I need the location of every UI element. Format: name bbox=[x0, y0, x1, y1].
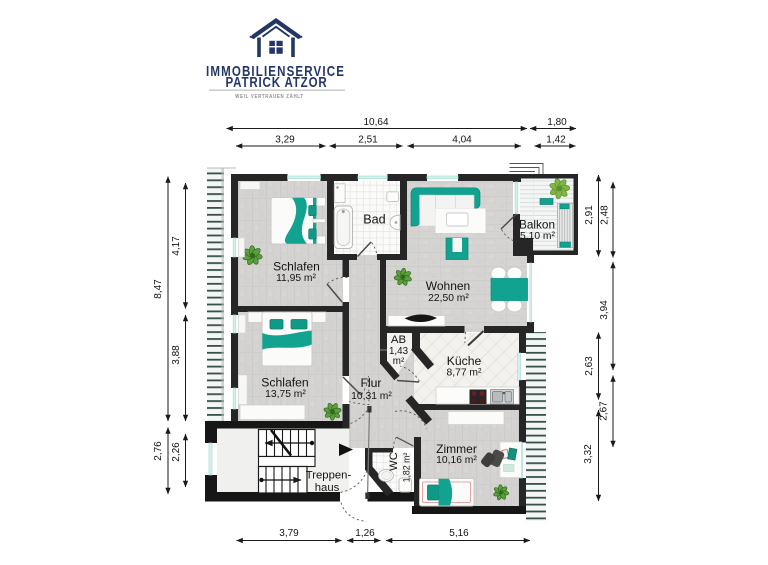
svg-text:22,50 m²: 22,50 m² bbox=[428, 293, 469, 304]
svg-text:2,51: 2,51 bbox=[358, 135, 378, 146]
svg-text:11,95 m²: 11,95 m² bbox=[276, 273, 316, 284]
svg-text:10,16 m²: 10,16 m² bbox=[436, 455, 477, 466]
svg-text:13,75 m²: 13,75 m² bbox=[265, 389, 306, 400]
svg-text:Küche: Küche bbox=[447, 354, 482, 368]
svg-text:Schlafen: Schlafen bbox=[261, 376, 308, 390]
svg-text:3,29: 3,29 bbox=[275, 135, 295, 146]
svg-text:AB: AB bbox=[391, 334, 406, 346]
svg-text:WEIL VERTRAUEN ZÄHLT: WEIL VERTRAUEN ZÄHLT bbox=[235, 93, 304, 101]
svg-text:8,47: 8,47 bbox=[153, 279, 164, 299]
svg-text:haus: haus bbox=[315, 482, 340, 494]
svg-text:2,76: 2,76 bbox=[153, 441, 164, 461]
svg-text:10,64: 10,64 bbox=[363, 117, 388, 128]
svg-text:Balkon: Balkon bbox=[519, 218, 555, 232]
svg-text:Flur: Flur bbox=[361, 376, 382, 390]
svg-text:2,91: 2,91 bbox=[584, 205, 595, 225]
svg-text:m²: m² bbox=[393, 356, 405, 367]
svg-text:2,48: 2,48 bbox=[600, 205, 611, 225]
svg-text:8,77 m²: 8,77 m² bbox=[447, 368, 482, 379]
svg-text:2,26: 2,26 bbox=[171, 442, 182, 462]
svg-text:1,80: 1,80 bbox=[547, 117, 567, 128]
svg-text:Treppen-: Treppen- bbox=[306, 470, 352, 482]
svg-text:2,63: 2,63 bbox=[584, 356, 595, 376]
svg-text:4,17: 4,17 bbox=[171, 236, 182, 256]
svg-text:3,94: 3,94 bbox=[599, 300, 610, 320]
svg-text:Schlafen: Schlafen bbox=[273, 260, 320, 274]
svg-text:1,42: 1,42 bbox=[546, 135, 566, 146]
svg-text:10,31 m²: 10,31 m² bbox=[351, 391, 392, 402]
svg-text:2,67: 2,67 bbox=[599, 401, 610, 421]
svg-text:1,82 m²: 1,82 m² bbox=[402, 453, 412, 483]
svg-text:WC: WC bbox=[388, 452, 400, 471]
svg-text:Bad: Bad bbox=[363, 213, 385, 227]
svg-text:3,79: 3,79 bbox=[279, 528, 299, 539]
svg-text:PATRICK ATZOR: PATRICK ATZOR bbox=[225, 74, 327, 91]
svg-text:3,32: 3,32 bbox=[583, 444, 594, 464]
svg-text:5,16: 5,16 bbox=[449, 528, 469, 539]
svg-text:Zimmer: Zimmer bbox=[436, 442, 477, 456]
svg-text:1,26: 1,26 bbox=[355, 528, 375, 539]
svg-text:Wohnen: Wohnen bbox=[426, 279, 470, 293]
svg-text:3,88: 3,88 bbox=[171, 345, 182, 365]
svg-text:5,10 m²: 5,10 m² bbox=[520, 231, 555, 242]
svg-text:4,04: 4,04 bbox=[452, 135, 472, 146]
